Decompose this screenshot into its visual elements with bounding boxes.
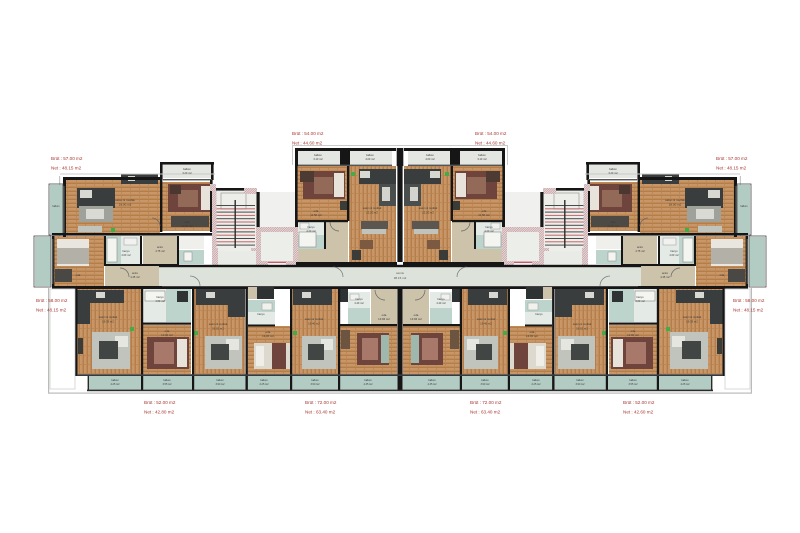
svg-text:21.20 m2: 21.20 m2 — [366, 211, 378, 215]
svg-text:38.15 m2: 38.15 m2 — [394, 276, 407, 280]
svg-text:3.10 m2: 3.10 m2 — [313, 157, 323, 161]
svg-text:2.25 m2: 2.25 m2 — [259, 383, 269, 386]
svg-text:3.10 m2: 3.10 m2 — [477, 157, 487, 161]
svg-text:salon & mutfak: salon & mutfak — [115, 198, 135, 202]
svg-text:4.00 m2: 4.00 m2 — [425, 157, 435, 161]
svg-text:19.35 m2: 19.35 m2 — [102, 320, 114, 324]
svg-text:11.50 m2: 11.50 m2 — [478, 213, 490, 217]
svg-text:Net : 48.15 m2: Net : 48.15 m2 — [716, 166, 747, 171]
svg-text:antre: antre — [662, 271, 668, 275]
svg-text:balkon: balkon — [314, 153, 322, 157]
svg-text:banyo: banyo — [355, 297, 363, 301]
svg-text:Net : 42.60 m2: Net : 42.60 m2 — [623, 410, 654, 415]
svg-text:4.40 m2: 4.40 m2 — [436, 301, 446, 305]
svg-text:balkon: balkon — [740, 205, 748, 208]
svg-text:Brüt : 72.00 m2: Brüt : 72.00 m2 — [305, 400, 337, 405]
svg-text:Net : 44.60 m2: Net : 44.60 m2 — [475, 141, 506, 146]
svg-text:4.60 m2: 4.60 m2 — [155, 299, 165, 303]
svg-text:4.60 m2: 4.60 m2 — [121, 253, 131, 257]
svg-text:3.90 m2: 3.90 m2 — [480, 383, 490, 386]
svg-text:antre: antre — [157, 245, 163, 249]
svg-text:balkon: balkon — [629, 379, 637, 382]
svg-text:balkon: balkon — [163, 379, 171, 382]
svg-text:4.25 m2: 4.25 m2 — [680, 383, 690, 386]
svg-text:Brüt : 57.00 m2: Brüt : 57.00 m2 — [51, 156, 83, 161]
svg-text:salon & mutfak: salon & mutfak — [419, 206, 438, 210]
svg-text:balkon: balkon — [216, 379, 224, 382]
svg-text:12.00 m2: 12.00 m2 — [627, 333, 639, 337]
svg-text:Brüt : 52.00 m2: Brüt : 52.00 m2 — [144, 400, 176, 405]
svg-text:balkon: balkon — [428, 379, 436, 382]
svg-text:balkon: balkon — [478, 153, 486, 157]
svg-text:3.20 m2: 3.20 m2 — [608, 171, 618, 175]
svg-text:19.40 m2: 19.40 m2 — [480, 322, 492, 326]
svg-text:oda: oda — [76, 273, 81, 277]
svg-text:3.90 m2: 3.90 m2 — [575, 383, 585, 386]
svg-text:Net : 48.15 m2: Net : 48.15 m2 — [51, 166, 82, 171]
svg-text:4.60 m2: 4.60 m2 — [669, 253, 679, 257]
svg-text:balkon: balkon — [681, 379, 689, 382]
svg-text:Net : 63.40 m2: Net : 63.40 m2 — [305, 410, 336, 415]
svg-text:4.45 m2: 4.45 m2 — [660, 275, 670, 279]
svg-text:salon & mutfak: salon & mutfak — [683, 315, 702, 319]
svg-text:salon & mutfak: salon & mutfak — [573, 322, 592, 326]
svg-text:banyo: banyo — [307, 225, 315, 229]
svg-text:4.75 m2: 4.75 m2 — [635, 249, 645, 253]
svg-text:banyo: banyo — [535, 312, 543, 316]
svg-text:salon & mutfak: salon & mutfak — [99, 315, 118, 319]
svg-text:4.75 m2: 4.75 m2 — [155, 249, 165, 253]
svg-text:Brüt : 54.00 m2: Brüt : 54.00 m2 — [475, 131, 507, 136]
svg-text:4.35 m2: 4.35 m2 — [427, 383, 437, 386]
svg-text:balkon: balkon — [364, 379, 372, 382]
svg-text:11.50 m2: 11.50 m2 — [181, 224, 193, 228]
svg-text:4.20 m2: 4.20 m2 — [306, 229, 316, 233]
svg-text:3.90 m2: 3.90 m2 — [215, 383, 225, 386]
svg-text:Net : 48.15 m2: Net : 48.15 m2 — [733, 308, 764, 313]
svg-text:19.40 m2: 19.40 m2 — [308, 322, 320, 326]
svg-text:13.96 m2: 13.96 m2 — [378, 317, 390, 321]
svg-text:Brüt : 72.00 m2: Brüt : 72.00 m2 — [470, 400, 502, 405]
svg-text:Net : 48.15 m2: Net : 48.15 m2 — [36, 308, 67, 313]
svg-text:salon & mutfak: salon & mutfak — [363, 206, 382, 210]
svg-text:19.35 m2: 19.35 m2 — [686, 320, 698, 324]
svg-text:21.20 m2: 21.20 m2 — [422, 211, 434, 215]
svg-text:banyo: banyo — [636, 295, 644, 299]
svg-text:11.50 m2: 11.50 m2 — [607, 224, 619, 228]
svg-text:balkon: balkon — [183, 167, 191, 171]
svg-text:4.00 m2: 4.00 m2 — [365, 157, 375, 161]
svg-text:19.00 m2: 19.00 m2 — [119, 203, 132, 207]
svg-text:servis: servis — [396, 271, 404, 275]
svg-text:oda: oda — [720, 273, 725, 277]
svg-text:Brüt : 52.00 m2: Brüt : 52.00 m2 — [623, 400, 655, 405]
svg-text:banyo: banyo — [485, 225, 493, 229]
svg-text:Brüt : 58.00 m2: Brüt : 58.00 m2 — [733, 298, 765, 303]
svg-text:antre: antre — [637, 245, 643, 249]
svg-text:banyo: banyo — [156, 295, 164, 299]
svg-text:balkon: balkon — [311, 379, 319, 382]
svg-text:26.02 m2: 26.02 m2 — [212, 327, 224, 331]
svg-text:19.00 m2: 19.00 m2 — [669, 203, 682, 207]
svg-text:4.25 m2: 4.25 m2 — [110, 383, 120, 386]
svg-text:salon & mutfak: salon & mutfak — [665, 198, 685, 202]
svg-text:4.20 m2: 4.20 m2 — [484, 229, 494, 233]
svg-text:4.45 m2: 4.45 m2 — [130, 275, 140, 279]
svg-text:salon & mutfak: salon & mutfak — [477, 317, 496, 321]
svg-text:banyo: banyo — [257, 312, 265, 316]
svg-text:banyo: banyo — [437, 297, 445, 301]
svg-text:2.25 m2: 2.25 m2 — [531, 383, 541, 386]
svg-text:26.02 m2: 26.02 m2 — [576, 327, 588, 331]
svg-text:salon & mutfak: salon & mutfak — [209, 322, 228, 326]
svg-text:balkon: balkon — [111, 379, 119, 382]
svg-text:banyo: banyo — [122, 249, 130, 253]
svg-text:Brüt : 58.00 m2: Brüt : 58.00 m2 — [36, 298, 68, 303]
svg-text:3.20 m2: 3.20 m2 — [182, 171, 192, 175]
svg-text:12.00 m2: 12.00 m2 — [262, 334, 274, 338]
svg-text:balkon: balkon — [532, 379, 540, 382]
svg-text:balkon: balkon — [366, 153, 374, 157]
svg-text:12.00 m2: 12.00 m2 — [526, 334, 538, 338]
svg-text:balkon: balkon — [52, 205, 60, 208]
svg-text:balkon: balkon — [609, 167, 617, 171]
svg-text:banyo: banyo — [670, 249, 678, 253]
svg-text:balkon: balkon — [576, 379, 584, 382]
svg-text:4.40 m2: 4.40 m2 — [354, 301, 364, 305]
svg-text:antre: antre — [132, 271, 138, 275]
svg-text:Net : 42.80 m2: Net : 42.80 m2 — [144, 410, 175, 415]
svg-text:3.90 m2: 3.90 m2 — [310, 383, 320, 386]
svg-text:Net : 63.40 m2: Net : 63.40 m2 — [470, 410, 501, 415]
svg-text:4.60 m2: 4.60 m2 — [635, 299, 645, 303]
svg-text:Brüt : 54.00 m2: Brüt : 54.00 m2 — [292, 131, 324, 136]
svg-text:balkon: balkon — [481, 379, 489, 382]
svg-text:3.55 m2: 3.55 m2 — [162, 383, 172, 386]
svg-text:13.96 m2: 13.96 m2 — [410, 317, 422, 321]
svg-text:balkon: balkon — [426, 153, 434, 157]
svg-text:11.50 m2: 11.50 m2 — [310, 213, 322, 217]
svg-text:Brüt : 57.00 m2: Brüt : 57.00 m2 — [716, 156, 748, 161]
svg-text:4.35 m2: 4.35 m2 — [363, 383, 373, 386]
svg-text:salon & mutfak: salon & mutfak — [305, 317, 324, 321]
svg-text:3.55 m2: 3.55 m2 — [628, 383, 638, 386]
svg-text:12.00 m2: 12.00 m2 — [161, 333, 173, 337]
svg-text:Net : 44.60 m2: Net : 44.60 m2 — [292, 141, 323, 146]
svg-text:balkon: balkon — [260, 379, 268, 382]
